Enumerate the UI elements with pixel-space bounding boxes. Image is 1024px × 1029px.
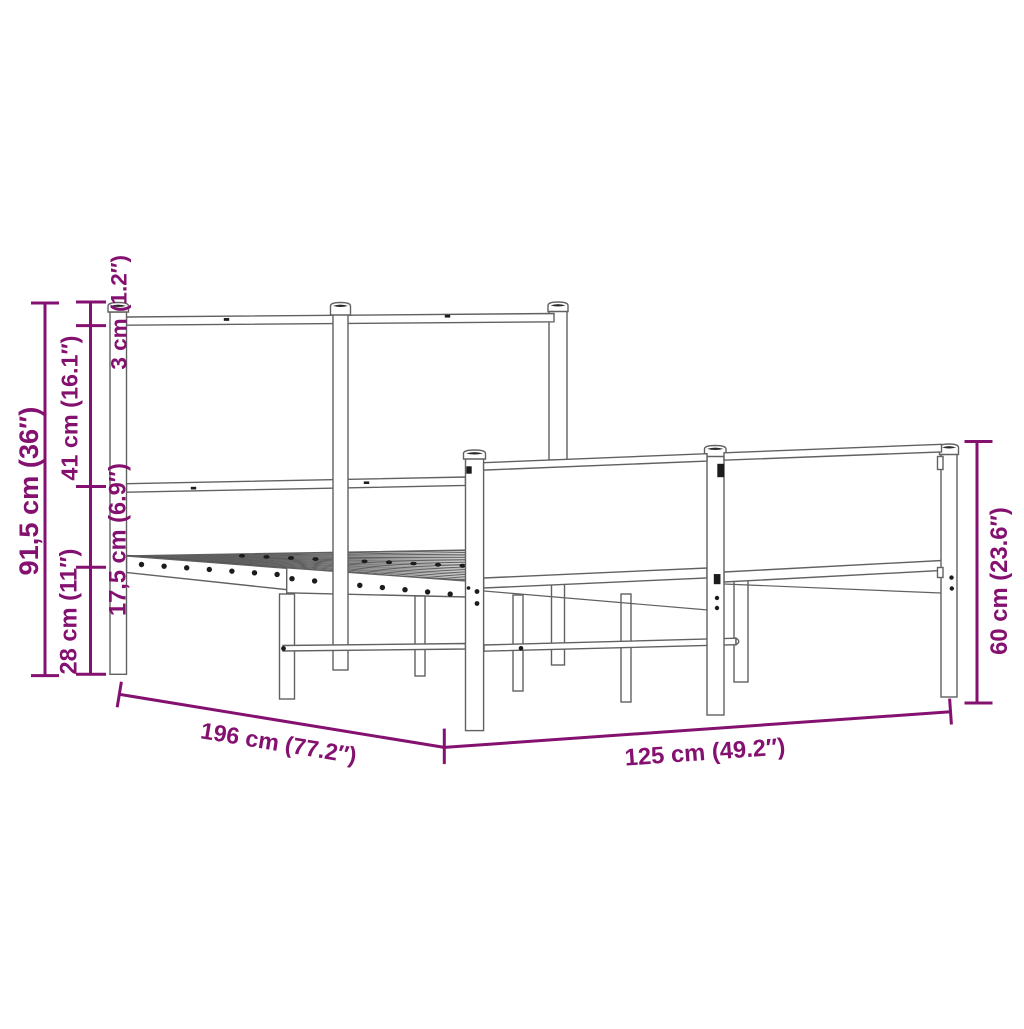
svg-text:60 cm (23.6″): 60 cm (23.6″) bbox=[986, 507, 1013, 655]
svg-text:91,5 cm (36″): 91,5 cm (36″) bbox=[13, 407, 44, 576]
svg-text:3 cm (1.2″): 3 cm (1.2″) bbox=[107, 255, 132, 370]
svg-text:28 cm (11″): 28 cm (11″) bbox=[57, 549, 83, 675]
svg-text:41 cm (16.1″): 41 cm (16.1″) bbox=[57, 336, 83, 481]
svg-text:17,5 cm (6.9″): 17,5 cm (6.9″) bbox=[106, 463, 132, 616]
